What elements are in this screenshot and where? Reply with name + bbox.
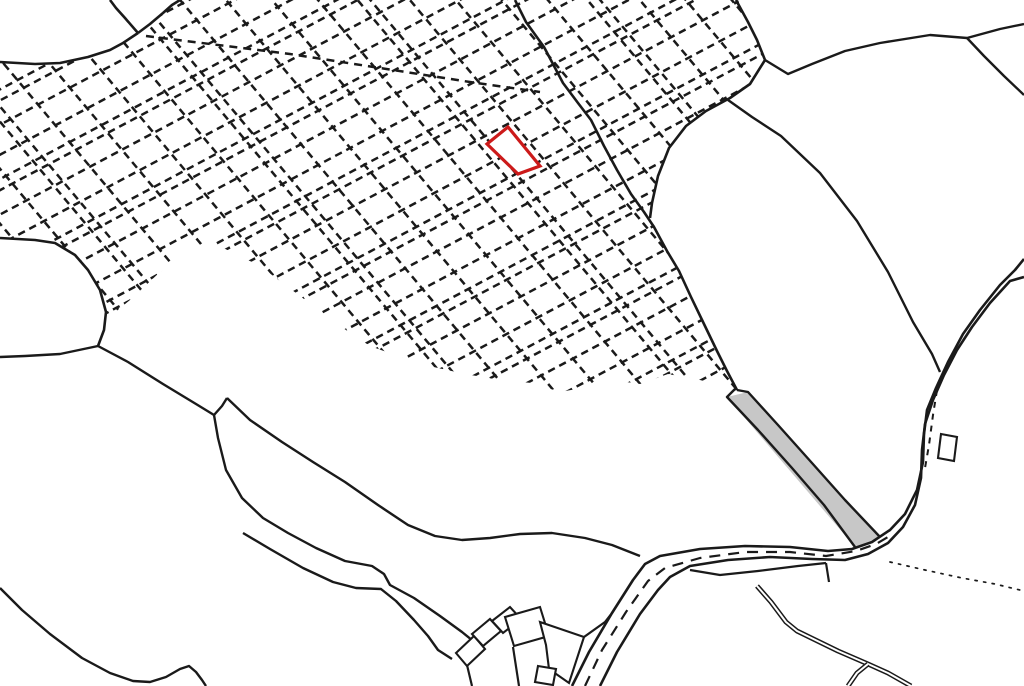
cadastral-map	[0, 0, 1024, 686]
map-paper	[0, 0, 1024, 686]
map-drawing	[0, 0, 1024, 686]
farm-outbuilding	[535, 666, 556, 685]
roadside-building	[938, 434, 957, 461]
